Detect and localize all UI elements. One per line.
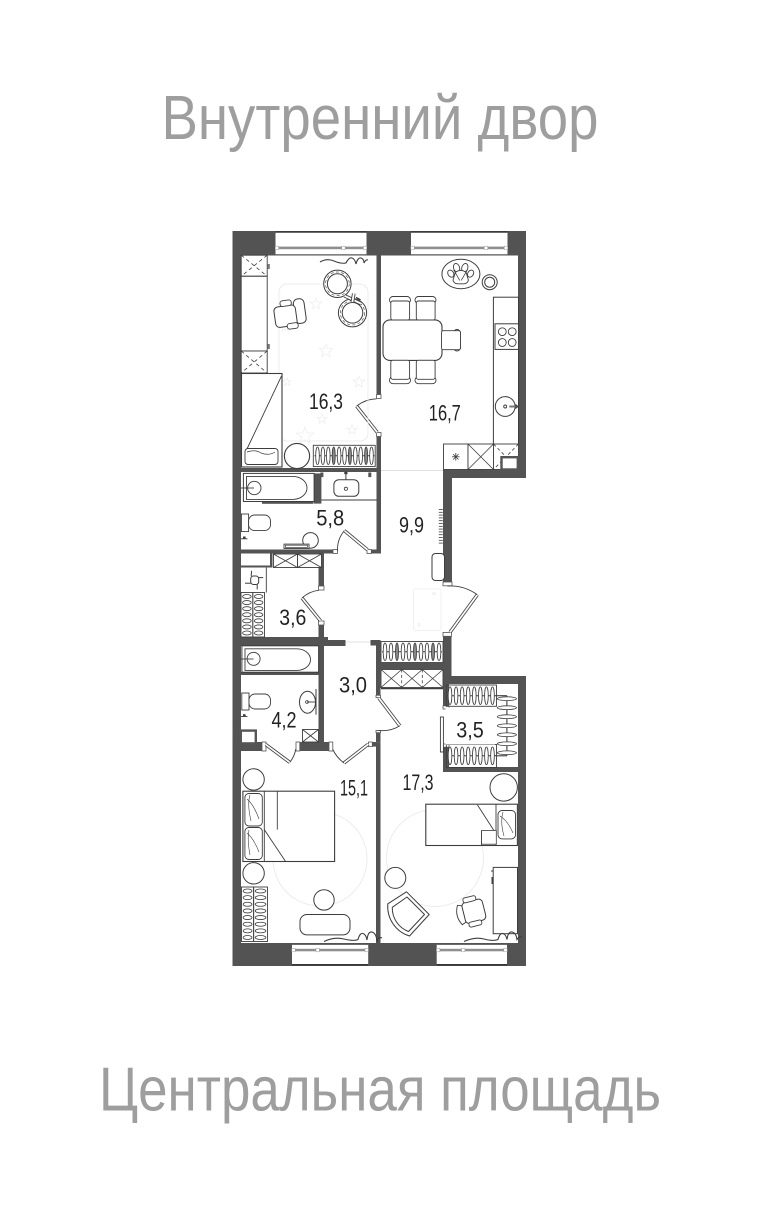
svg-text:16,7: 16,7 bbox=[429, 400, 461, 425]
svg-text:3,0: 3,0 bbox=[339, 672, 367, 697]
svg-text:5,8: 5,8 bbox=[316, 506, 344, 531]
svg-text:3,5: 3,5 bbox=[456, 718, 484, 743]
svg-text:15,1: 15,1 bbox=[340, 776, 368, 801]
svg-text:17,3: 17,3 bbox=[403, 770, 434, 795]
svg-text:Внутренний двор: Внутренний двор bbox=[162, 84, 599, 153]
svg-text:3,6: 3,6 bbox=[279, 605, 306, 630]
svg-text:Центральная площадь: Центральная площадь bbox=[99, 1056, 661, 1125]
svg-text:16,3: 16,3 bbox=[309, 389, 343, 414]
svg-text:4,2: 4,2 bbox=[272, 708, 297, 733]
svg-text:9,9: 9,9 bbox=[399, 513, 424, 538]
